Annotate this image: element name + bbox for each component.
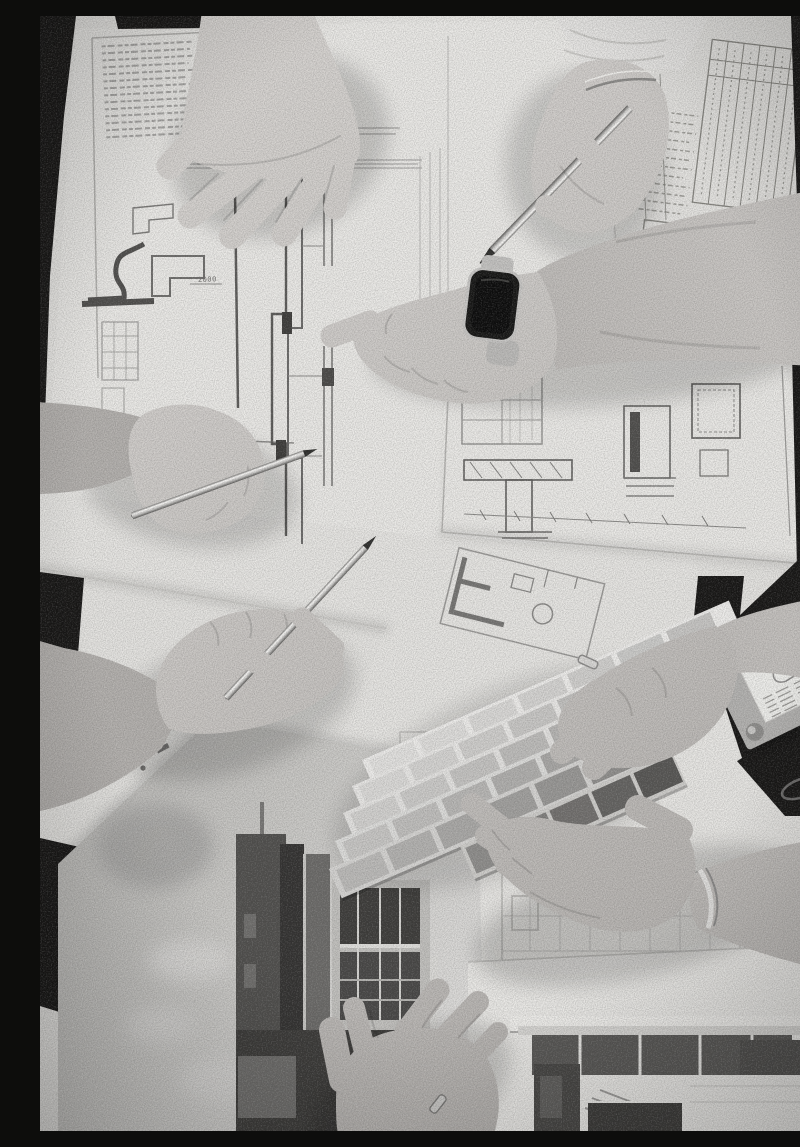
photo-canvas: 2000 (40, 16, 800, 1131)
design-meeting-photo: 2000 (40, 16, 800, 1131)
film-grain-light (40, 16, 800, 1131)
